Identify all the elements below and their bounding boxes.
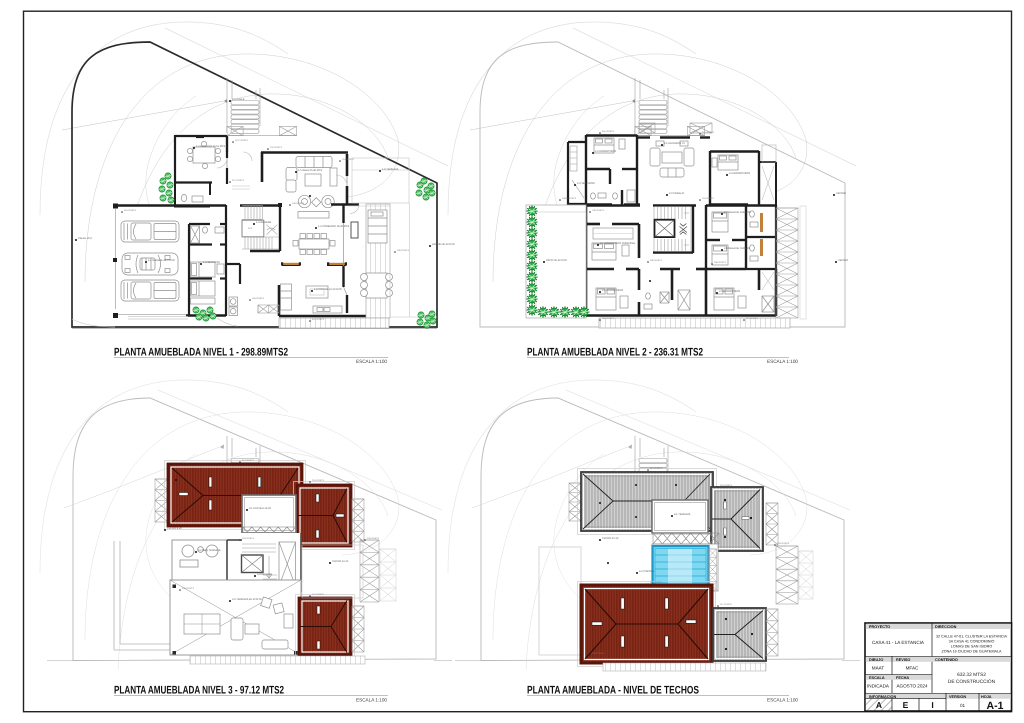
svg-text:DIBUJO: DIBUJO <box>869 658 883 662</box>
svg-text:209.20 MTS: 209.20 MTS <box>592 652 604 655</box>
svg-text:512.20 MTS: 512.20 MTS <box>242 459 254 462</box>
svg-text:2.6 DORMITORIO: 2.6 DORMITORIO <box>602 289 623 292</box>
svg-text:228.20 MTS: 228.20 MTS <box>367 537 379 540</box>
svg-text:312.20 MTS: 312.20 MTS <box>746 317 758 320</box>
svg-text:632.32 MTS2: 632.32 MTS2 <box>957 672 986 678</box>
svg-text:CASA 41 - LA ESTANCIA: CASA 41 - LA ESTANCIA <box>872 640 925 645</box>
svg-text:ESCALA 1:100: ESCALA 1:100 <box>356 698 387 704</box>
svg-text:1.3 SERVICIO: 1.3 SERVICIO <box>203 261 220 264</box>
svg-text:AGOSTO 2024: AGOSTO 2024 <box>896 684 928 689</box>
svg-text:1.4 GRADAS: 1.4 GRADAS <box>256 221 272 224</box>
svg-text:145.20 MTS: 145.20 MTS <box>592 209 604 212</box>
svg-text:PLANTA AMUEBLADA - NIVEL DE T: PLANTA AMUEBLADA - NIVEL DE TECHOS <box>527 685 699 697</box>
svg-text:208.20 MTS: 208.20 MTS <box>714 261 726 264</box>
svg-text:CALLE 25.0: CALLE 25.0 <box>78 237 93 240</box>
svg-text:209.20 MTS: 209.20 MTS <box>182 587 194 590</box>
svg-text:3.4 GRADAS: 3.4 GRADAS <box>257 573 273 576</box>
svg-text:309.20 MTS: 309.20 MTS <box>650 259 662 262</box>
svg-text:ESCALA: ESCALA <box>869 676 885 680</box>
svg-text:312.20 MTS: 312.20 MTS <box>232 179 244 182</box>
svg-text:228.20 MTS: 228.20 MTS <box>777 542 789 545</box>
svg-text:TECHO 8.20: TECHO 8.20 <box>167 527 182 530</box>
svg-text:318.20 MTS: 318.20 MTS <box>242 537 254 540</box>
svg-text:212.20 MTS: 212.20 MTS <box>702 131 714 134</box>
svg-text:2.9 DORMITORIO: 2.9 DORMITORIO <box>719 290 740 293</box>
svg-text:ESCALA 1:100: ESCALA 1:100 <box>356 359 387 365</box>
svg-text:1.9 TERRAZA: 1.9 TERRAZA <box>382 168 399 171</box>
svg-text:CONTENIDO: CONTENIDO <box>935 658 958 662</box>
svg-text:2.4 DORMITORIO: 2.4 DORMITORIO <box>729 172 750 175</box>
svg-text:JARD.20 MTS: JARD.20 MTS <box>562 197 577 200</box>
svg-text:VECINO: VECINO <box>838 259 848 262</box>
svg-text:118.20 MTS: 118.20 MTS <box>702 197 714 200</box>
svg-text:1.6 COMEDOR 18.20 MTS: 1.6 COMEDOR 18.20 MTS <box>318 225 350 228</box>
svg-text:ESCALA 1:100: ESCALA 1:100 <box>767 359 798 365</box>
svg-text:155.20 MTS: 155.20 MTS <box>252 297 264 300</box>
svg-text:3.3 TERRAZA 45.10 MTS: 3.3 TERRAZA 45.10 MTS <box>232 598 262 601</box>
svg-text:01: 01 <box>960 703 966 708</box>
svg-text:TECHO 22.15: TECHO 22.15 <box>332 560 349 563</box>
svg-text:415.20 MTS: 415.20 MTS <box>312 318 324 321</box>
svg-text:4.1 TERRAZA: 4.1 TERRAZA <box>674 513 691 516</box>
svg-text:117.20 MTS: 117.20 MTS <box>312 593 324 596</box>
svg-text:VECINO: VECINO <box>836 192 846 195</box>
svg-text:4.2 PISCINA: 4.2 PISCINA <box>639 570 654 573</box>
svg-text:E: E <box>903 700 909 710</box>
svg-text:FECHA: FECHA <box>896 676 909 680</box>
svg-text:1.1 GARAJE 48.0 MTS: 1.1 GARAJE 48.0 MTS <box>148 259 175 262</box>
svg-text:255.20 MTS: 255.20 MTS <box>602 317 614 320</box>
svg-text:117.20 MTS: 117.20 MTS <box>720 603 732 606</box>
svg-text:2.1 ESTANCIA TV: 2.1 ESTANCIA TV <box>664 142 685 145</box>
svg-text:318.20 MTS: 318.20 MTS <box>650 581 662 584</box>
svg-text:TECHO 25.10: TECHO 25.10 <box>602 537 619 540</box>
svg-text:S.S.: S.S. <box>248 227 253 230</box>
svg-text:MFAC: MFAC <box>906 666 919 671</box>
svg-text:PATIO 35.20 MTS: PATIO 35.20 MTS <box>546 259 567 262</box>
svg-text:1.5 SALA 25.40 MTS: 1.5 SALA 25.40 MTS <box>298 169 322 172</box>
svg-text:2.8 SALA DE TAREAS: 2.8 SALA DE TAREAS <box>724 247 750 250</box>
svg-text:INDICADA: INDICADA <box>867 684 890 689</box>
svg-text:3.1 CUPULA 12.20: 3.1 CUPULA 12.20 <box>249 507 271 510</box>
svg-text:316.20 MTS: 316.20 MTS <box>602 130 614 133</box>
svg-text:JARDIN 45.20 MTS: JARDIN 45.20 MTS <box>432 243 455 246</box>
svg-text:3.2 BBQ TERRAZA: 3.2 BBQ TERRAZA <box>198 549 221 552</box>
svg-text:DE CONSTRUCCIÓN: DE CONSTRUCCIÓN <box>948 678 996 685</box>
svg-text:215.20 MTS: 215.20 MTS <box>720 484 732 487</box>
svg-text:1.8 COCINA 16.50 MTS: 1.8 COCINA 16.50 MTS <box>314 288 342 291</box>
svg-text:240.20 MTS: 240.20 MTS <box>292 202 304 205</box>
svg-text:PLANTA AMUEBLADA NIVEL 2 - 236: PLANTA AMUEBLADA NIVEL 2 - 236.31 MTS2 <box>527 347 703 359</box>
svg-text:2.0 PASILLO: 2.0 PASILLO <box>669 192 684 195</box>
svg-text:DIRECCION: DIRECCION <box>935 625 957 629</box>
svg-text:A: A <box>876 700 882 710</box>
svg-text:ZONA 16 CIUDAD DE GUATEMALA: ZONA 16 CIUDAD DE GUATEMALA <box>942 650 1003 654</box>
svg-text:ESCALA 1:100: ESCALA 1:100 <box>767 698 798 704</box>
svg-text:2.3 VESTIDOR: 2.3 VESTIDOR <box>577 182 595 185</box>
svg-text:MAAT: MAAT <box>872 666 885 671</box>
svg-text:3A CASA 41 CONDOMINIO: 3A CASA 41 CONDOMINIO <box>949 640 995 644</box>
svg-text:HOJA: HOJA <box>981 695 992 699</box>
svg-text:1.2 ESTUDIO 15.61 MTS: 1.2 ESTUDIO 15.61 MTS <box>196 145 226 148</box>
svg-text:118.20 MTS: 118.20 MTS <box>342 158 354 161</box>
svg-text:A-1: A-1 <box>987 700 1004 712</box>
svg-text:2.5 DORMITORIO PRINCIPAL: 2.5 DORMITORIO PRINCIPAL <box>600 242 636 245</box>
svg-text:231.20 MTS: 231.20 MTS <box>270 146 282 149</box>
svg-text:2.7 SALA DE JUEGOS: 2.7 SALA DE JUEGOS <box>724 211 751 214</box>
svg-text:LOMAS DE SAN ISIDRO: LOMAS DE SAN ISIDRO <box>951 645 993 649</box>
svg-text:PLANTA AMUEBLADA NIVEL 3 - 97.: PLANTA AMUEBLADA NIVEL 3 - 97.12 MTS2 <box>114 685 284 697</box>
svg-text:208.20 MTS: 208.20 MTS <box>397 249 409 252</box>
svg-text:PROYECTO: PROYECTO <box>869 625 890 629</box>
svg-text:VERSION: VERSION <box>949 695 966 699</box>
svg-text:I: I <box>931 700 933 710</box>
svg-text:215.20 MTS: 215.20 MTS <box>312 479 324 482</box>
svg-text:515.20 MTS: 515.20 MTS <box>124 209 136 212</box>
svg-text:32 CALLE 47-01, CLUSTER LA EST: 32 CALLE 47-01, CLUSTER LA ESTANCIA <box>936 635 1008 639</box>
svg-text:512.20 MTS: 512.20 MTS <box>650 467 662 470</box>
svg-text:REVISO: REVISO <box>896 658 910 662</box>
svg-text:2.2 DORMITORIO: 2.2 DORMITORIO <box>595 150 616 153</box>
svg-text:PLANTA AMUEBLADA NIVEL 1 - 298: PLANTA AMUEBLADA NIVEL 1 - 298.89MTS2 <box>114 347 288 359</box>
svg-text:ACC.20 MTS: ACC.20 MTS <box>235 139 248 142</box>
svg-text:2.0 CALLE: 2.0 CALLE <box>232 98 245 101</box>
